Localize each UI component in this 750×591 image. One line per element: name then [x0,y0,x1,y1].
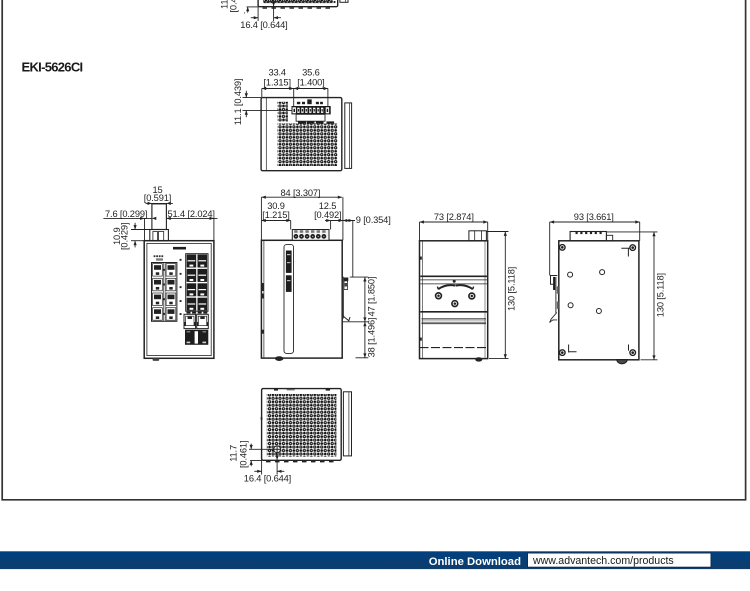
svg-text:11.7: 11.7 [229,445,239,462]
svg-text:130 [5.118]: 130 [5.118] [656,273,666,317]
svg-text:www.advantech.com/products: www.advantech.com/products [532,555,674,567]
svg-text:EKI-5626CI: EKI-5626CI [22,60,83,75]
svg-text:9 [0.354]: 9 [0.354] [356,215,391,225]
svg-text:16.4 [0.644]: 16.4 [0.644] [244,474,291,484]
svg-text:38 [1.496]: 38 [1.496] [367,318,377,358]
svg-text:[0.492]: [0.492] [314,210,341,220]
svg-text:130 [5.118]: 130 [5.118] [506,267,516,311]
svg-text:84 [3.307]: 84 [3.307] [281,188,321,198]
svg-text:[0.461]: [0.461] [229,0,239,13]
svg-text:Online Download: Online Download [429,556,521,568]
svg-text:[1.400]: [1.400] [297,77,324,87]
svg-text:[1.315]: [1.315] [264,77,291,87]
svg-text:47 [1.850]: 47 [1.850] [367,277,377,317]
svg-text:[0.591]: [0.591] [144,193,171,203]
svg-text:73 [2.874]: 73 [2.874] [434,212,474,222]
svg-text:93 [3.661]: 93 [3.661] [574,212,614,222]
svg-text:[0.429]: [0.429] [119,223,129,250]
svg-text:11.1 [0.439]: 11.1 [0.439] [233,79,243,126]
svg-text:51.4 [2.024]: 51.4 [2.024] [168,209,215,219]
svg-text:33.4: 33.4 [268,68,286,78]
svg-text:[0.461]: [0.461] [239,441,249,468]
svg-text:35.6: 35.6 [302,68,320,78]
svg-text:[1.215]: [1.215] [262,210,289,220]
